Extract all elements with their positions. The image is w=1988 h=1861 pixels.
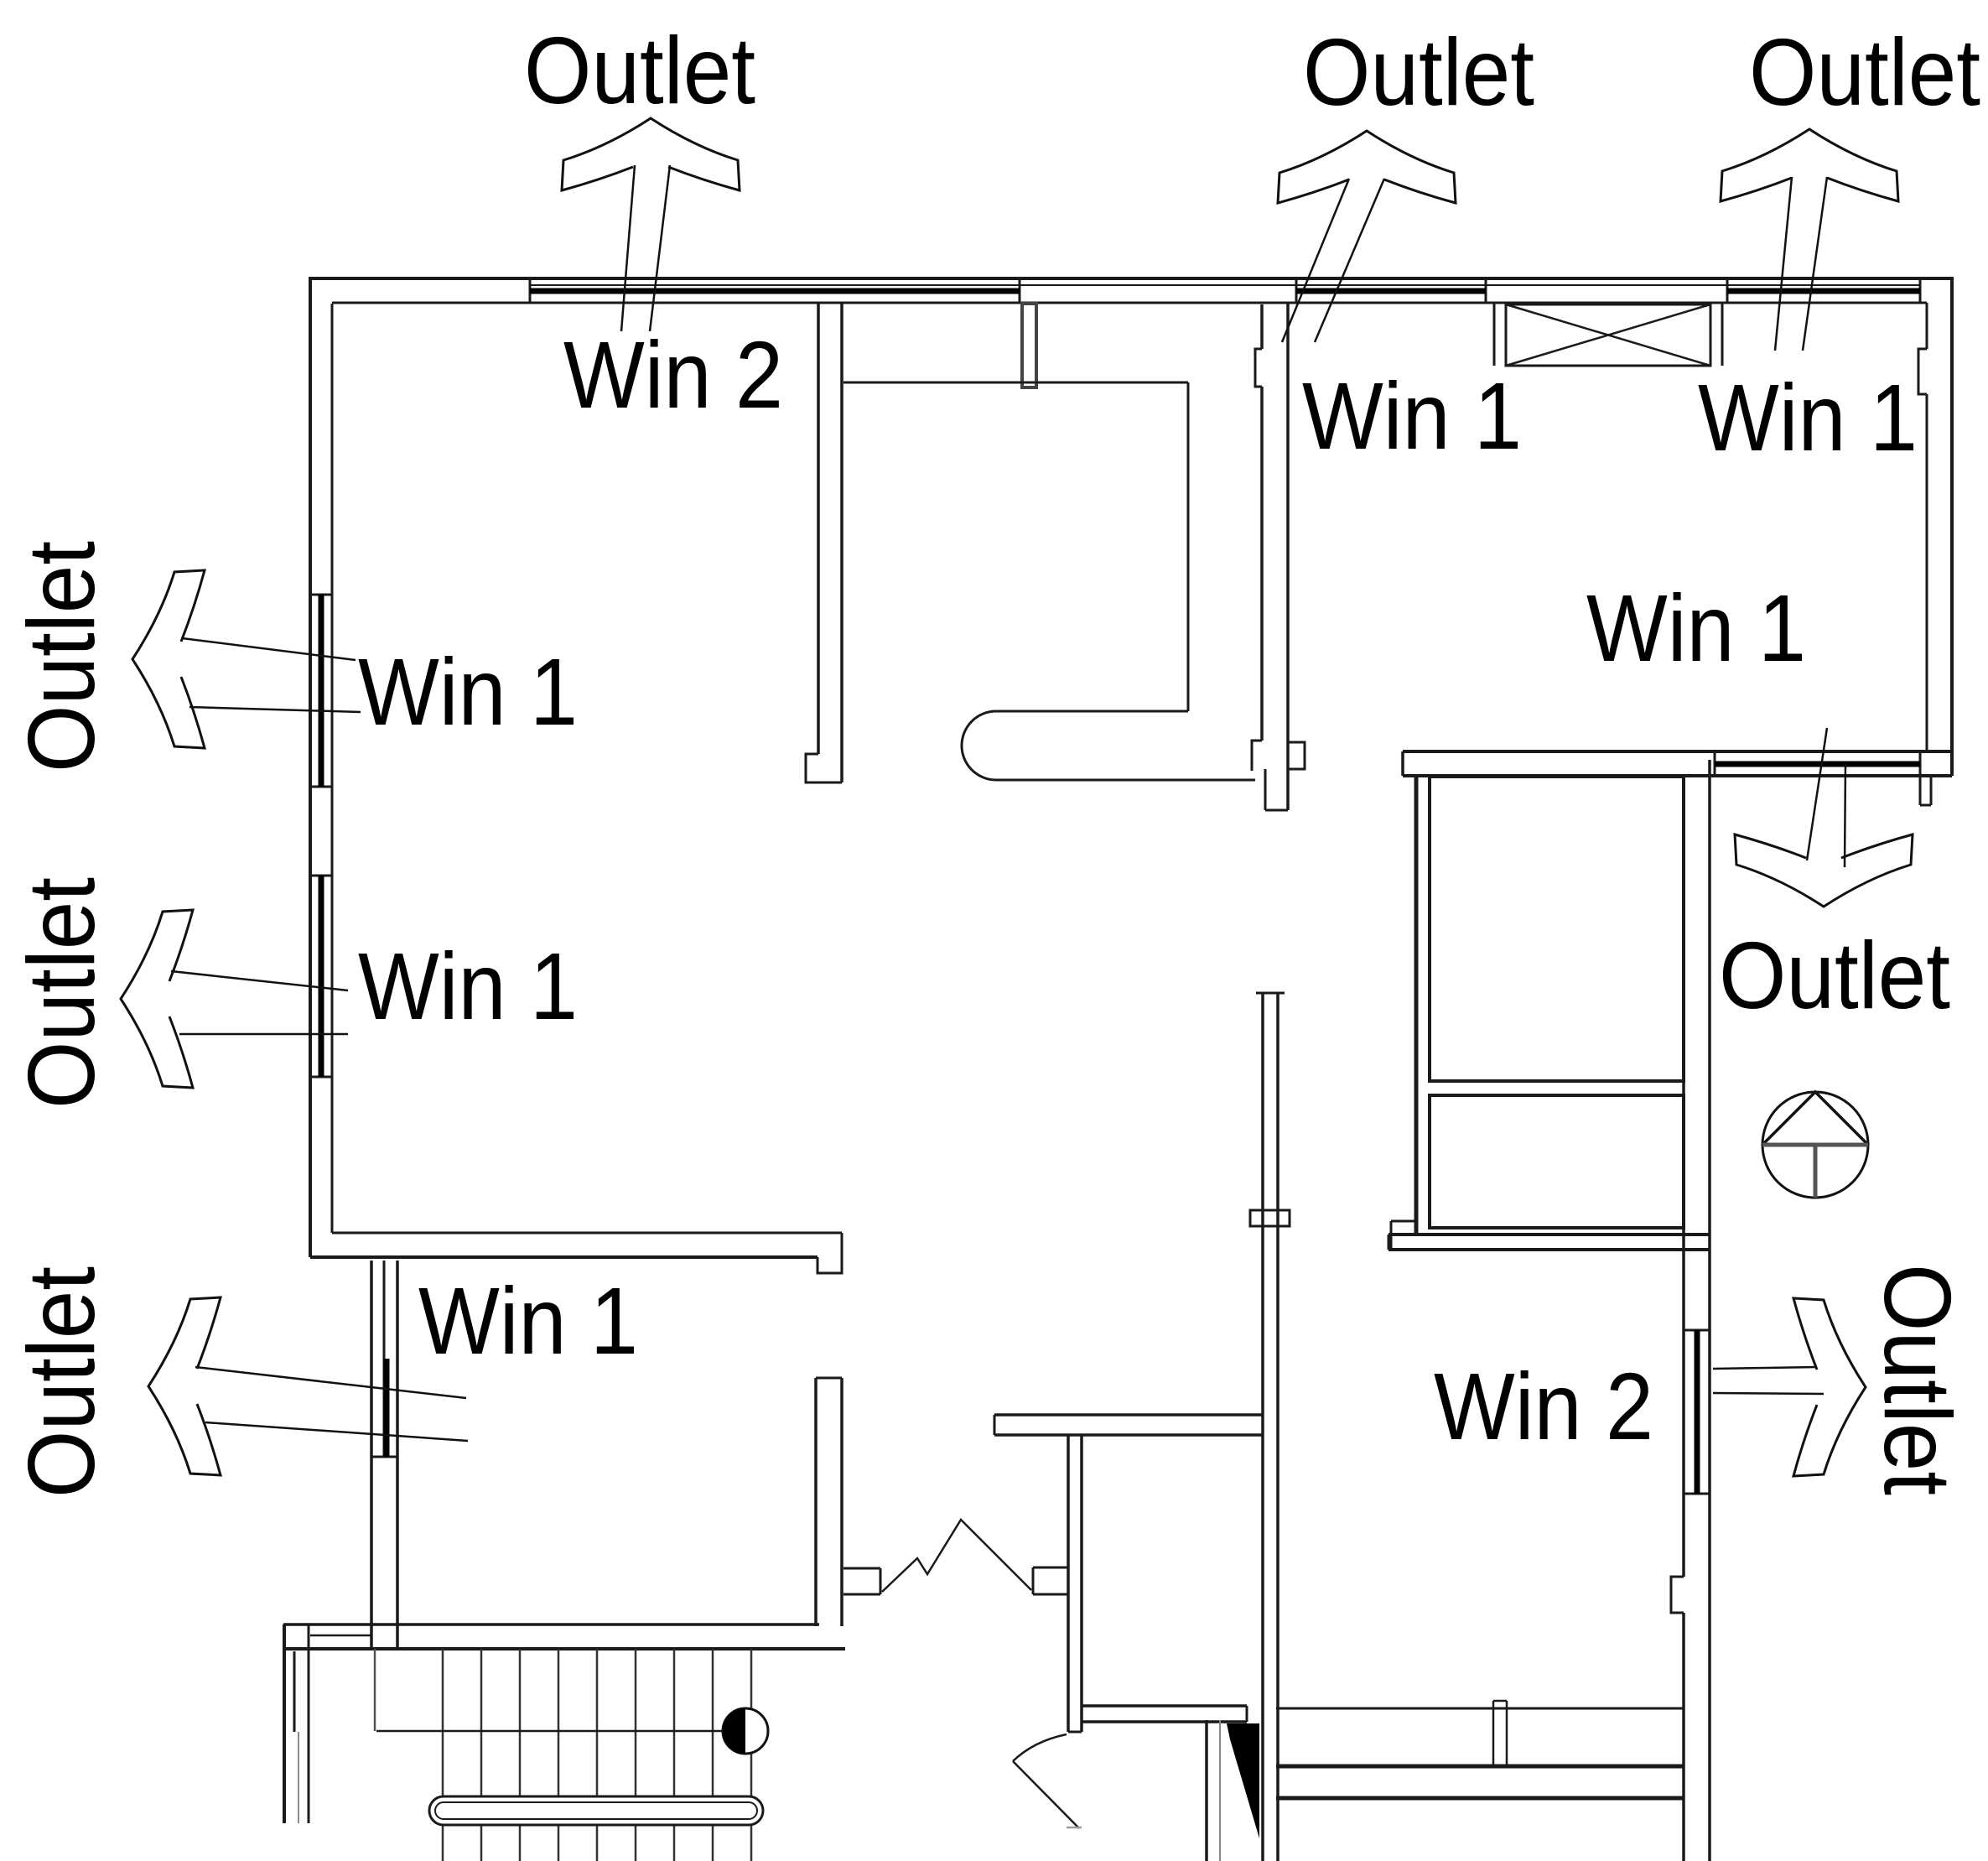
svg-text:Win 2: Win 2 [563,322,783,428]
svg-text:Win 1: Win 1 [1698,365,1918,470]
svg-text:Outlet: Outlet [8,1266,114,1498]
svg-text:Win 1: Win 1 [358,639,578,745]
svg-text:Outlet: Outlet [1719,923,1950,1028]
svg-text:Win 1: Win 1 [358,933,578,1039]
svg-text:Outlet: Outlet [1303,19,1534,125]
svg-text:Win 2: Win 2 [1434,1354,1653,1459]
svg-text:Win 1: Win 1 [1302,363,1522,469]
svg-text:Outlet: Outlet [524,18,755,123]
svg-text:Outlet: Outlet [1865,1264,1970,1495]
svg-text:Win 1: Win 1 [418,1268,638,1374]
svg-text:Outlet: Outlet [1749,19,1980,125]
svg-text:Outlet: Outlet [8,541,114,772]
svg-text:Outlet: Outlet [8,877,114,1109]
svg-text:Win 1: Win 1 [1586,575,1806,681]
